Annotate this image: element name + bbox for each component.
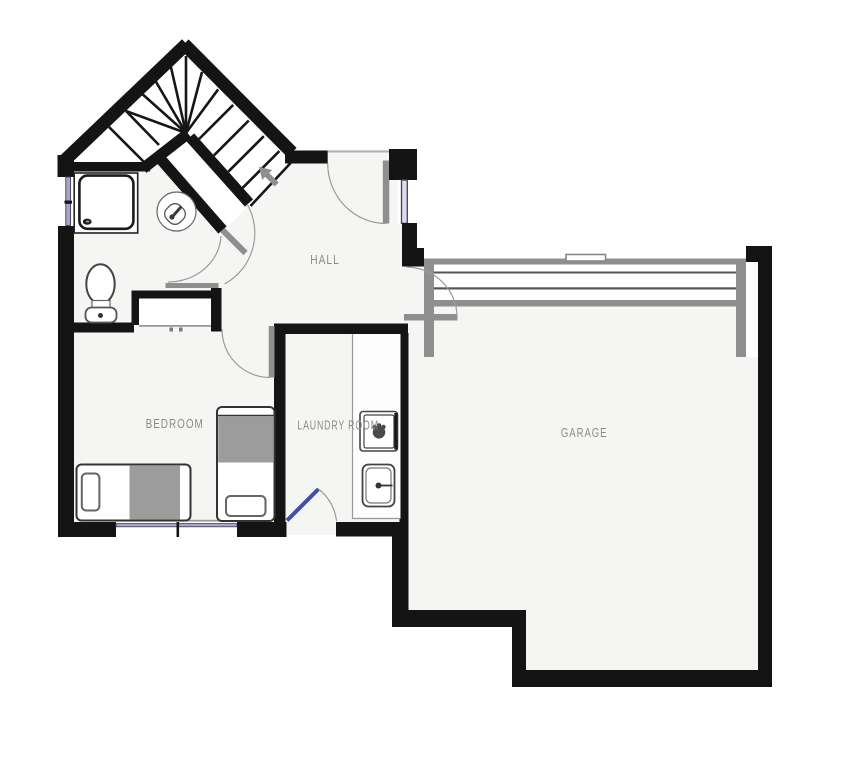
svg-text:LAUNDRY ROOM: LAUNDRY ROOM: [297, 417, 379, 432]
svg-text:GARAGE: GARAGE: [561, 425, 608, 440]
svg-text:BEDROOM: BEDROOM: [146, 416, 204, 431]
svg-text:HALL: HALL: [310, 252, 340, 267]
